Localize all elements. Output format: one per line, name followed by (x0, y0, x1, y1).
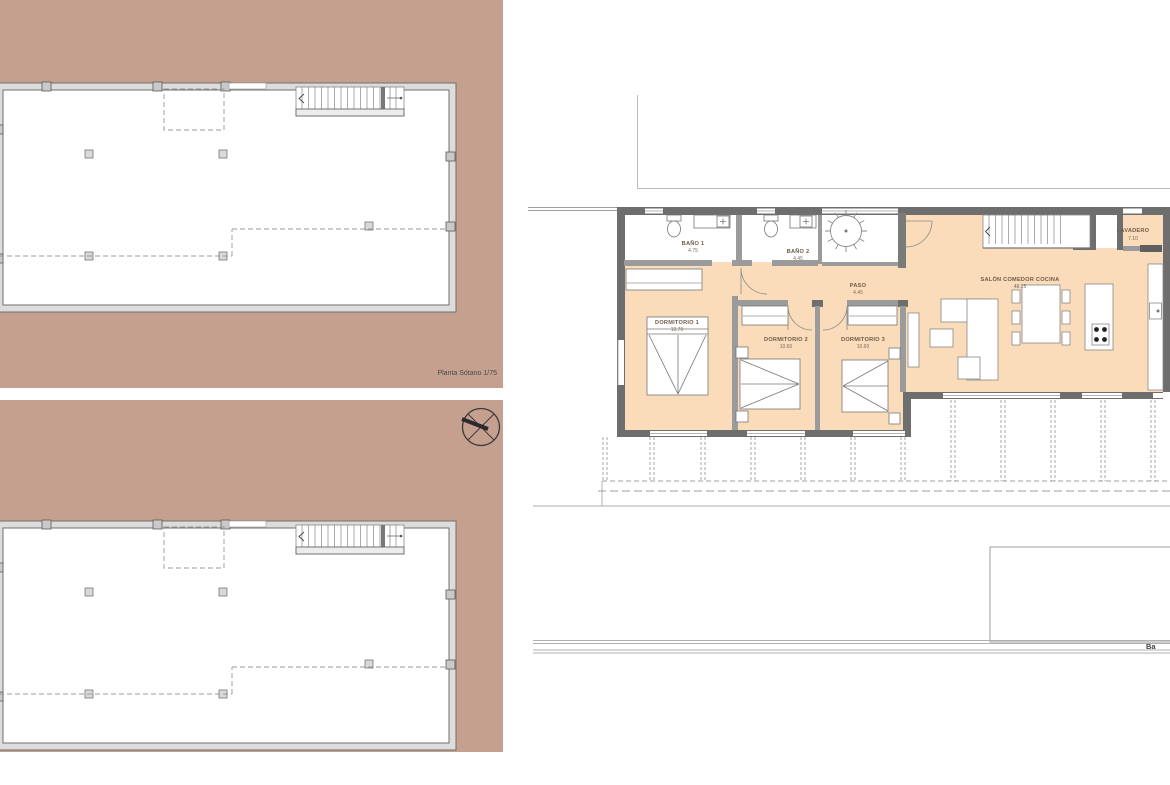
label-dorm3: DORMITORIO 3 (841, 337, 885, 343)
kitchen-island (1085, 284, 1113, 350)
plan-cubierta-drawing (0, 520, 456, 750)
toilet-tank (667, 215, 681, 221)
nightstand (736, 411, 748, 422)
kitchen-sink-icon (1150, 303, 1162, 319)
toilet-icon (765, 221, 778, 237)
site-boundary-lines (528, 95, 1170, 211)
area-paso: 4.45 (853, 290, 863, 296)
area-bano2: 4.45 (793, 256, 803, 262)
closet (626, 269, 702, 290)
area-dorm2: 10.60 (780, 344, 793, 350)
label-dorm2: DORMITORIO 2 (764, 337, 808, 343)
dining-table (1022, 285, 1060, 343)
area-dorm3: 10.60 (857, 344, 870, 350)
area-bano1: 4.75 (688, 248, 698, 254)
label-dorm1: DORMITORIO 1 (655, 320, 699, 326)
area-salon: 48.15 (1014, 284, 1027, 290)
single-bed (740, 359, 800, 409)
closet (848, 306, 897, 325)
drawing-canvas: Planta Sótano 1/75 (0, 0, 1170, 785)
plan-cubierta-block (0, 400, 503, 752)
kitchen-counter (1148, 264, 1163, 390)
tv-unit (908, 313, 919, 367)
label-paso: PASO (850, 283, 867, 289)
floor-plan-sheet: Planta Sótano 1/75 (0, 0, 1170, 785)
area-dorm1: 12.70 (671, 327, 684, 333)
label-salon: SALÓN COMEDOR COCINA (981, 275, 1060, 283)
stair-landing-floor (1096, 215, 1117, 248)
nightstand (889, 348, 900, 359)
staircase (983, 215, 1090, 248)
plan-baja-caption-fragment: Ba (1146, 642, 1156, 651)
cooktop-icon (1092, 324, 1109, 345)
label-bano1: BAÑO 1 (682, 240, 705, 247)
nightstand (736, 347, 748, 358)
plan-baja-block: Ba BAÑO 1 4.75 BAÑO 2 4.45 PASO 4.45 LAV… (528, 95, 1170, 653)
pool-outline (990, 547, 1170, 642)
label-lavadero: LAVADERO (1117, 228, 1150, 234)
toilet-tank (764, 215, 778, 221)
coffee-table (930, 329, 953, 347)
door-opening-dorm1 (732, 266, 738, 296)
nightstand (889, 413, 900, 424)
label-bano2: BAÑO 2 (787, 248, 810, 255)
porch-columns (603, 437, 905, 481)
plan-sotano-block: Planta Sótano 1/75 (0, 0, 503, 388)
porch-columns (951, 400, 1155, 481)
closet (742, 306, 788, 325)
plan-sotano-caption: Planta Sótano 1/75 (437, 370, 497, 377)
plan-sotano-drawing (0, 82, 456, 312)
toilet-icon (668, 221, 681, 237)
area-lavadero: 7.10 (1128, 236, 1138, 242)
single-bed (842, 360, 888, 412)
